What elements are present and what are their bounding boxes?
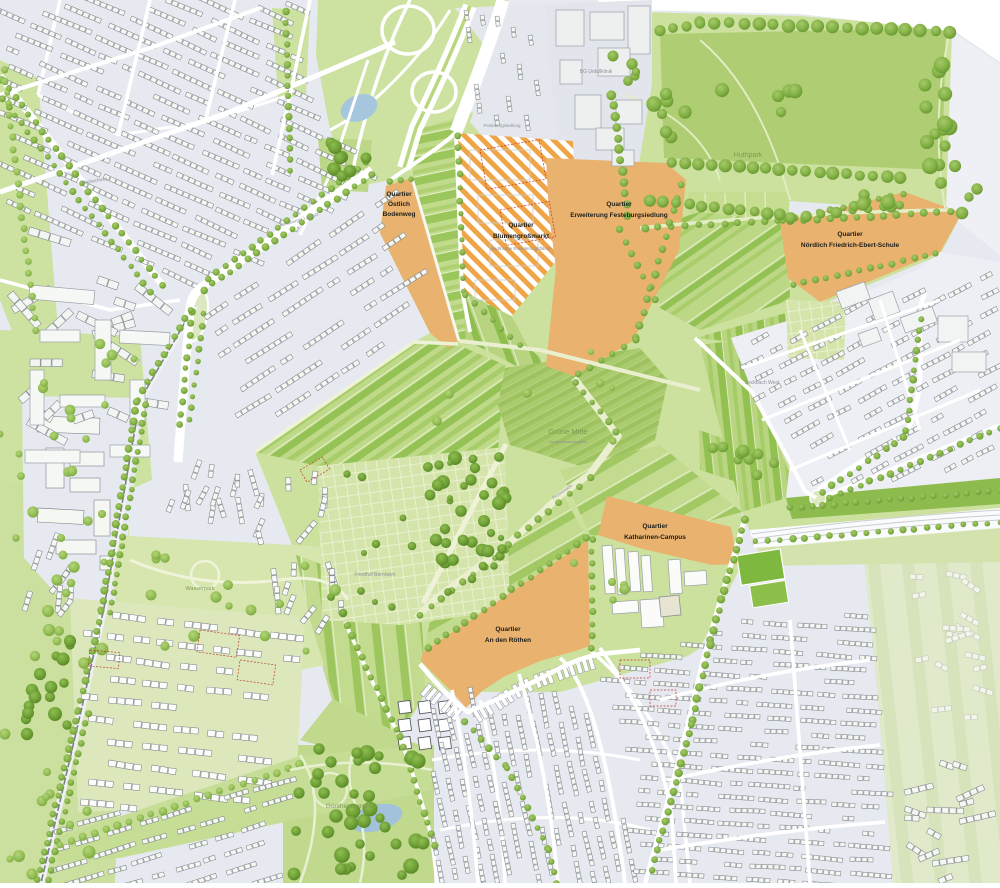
svg-text:Festeburgsiedlung: Festeburgsiedlung [483, 123, 521, 128]
svg-text:Landschaftsschutzgebiet: Landschaftsschutzgebiet [549, 440, 588, 444]
svg-text:BG Unfallklinik: BG Unfallklinik [580, 69, 613, 75]
svg-text:Grüne Mitte: Grüne Mitte [548, 427, 587, 436]
svg-text:Wasserpark: Wasserpark [185, 586, 214, 592]
svg-text:Seckbach West: Seckbach West [745, 380, 780, 386]
svg-text:langfristige Erweiterungsfläch: langfristige Erweiterungsfläche [490, 246, 552, 251]
svg-text:Günthersburgpark: Günthersburgpark [326, 803, 379, 810]
svg-text:Friedhof Bornheim: Friedhof Bornheim [354, 572, 395, 578]
svg-text:Huthpark: Huthpark [734, 152, 763, 159]
